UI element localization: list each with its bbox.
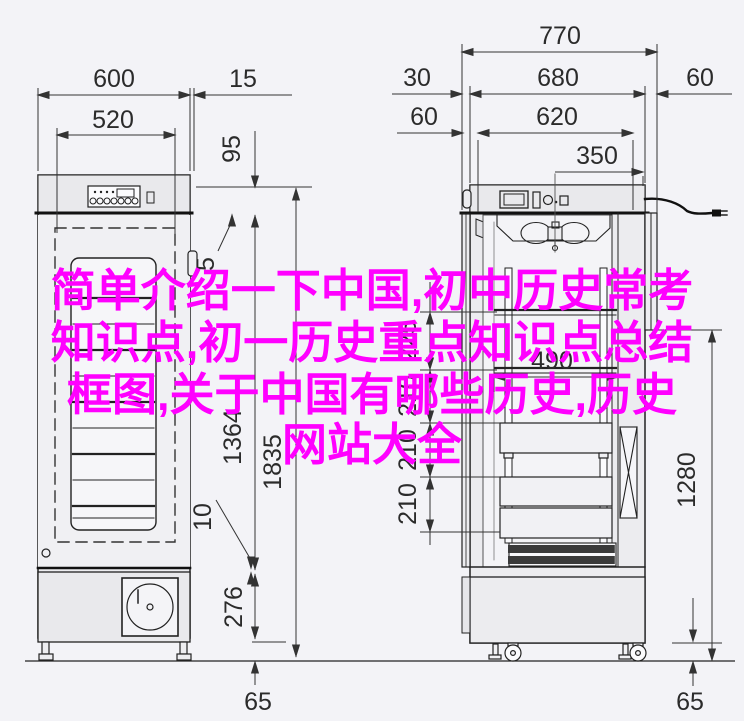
dim-side-caster-height: 65 [676, 688, 704, 716]
side-base [470, 577, 645, 643]
dim-front-side-offset: 15 [229, 65, 257, 93]
dim-side-total-depth: 770 [539, 22, 581, 50]
power-plug [712, 210, 721, 217]
side-top-panel [470, 185, 645, 213]
dim-front-base-height: 276 [220, 586, 248, 628]
seo-overlay-line-1: 简单介绍一下中国,初中历史常考 [0, 266, 744, 316]
seo-overlay-line-4: 网站大全 [0, 420, 744, 470]
dim-front-bottom-gap: 10 [189, 503, 217, 531]
side-base-front-panel [462, 577, 470, 633]
dim-front-top-height: 95 [218, 135, 246, 163]
dim-side-rear-offset: 60 [686, 64, 714, 92]
front-feet [39, 642, 191, 660]
dim-side-front-offset: 60 [410, 103, 438, 131]
side-handle-cap [463, 190, 471, 208]
dim-side-pitch-4: 210 [394, 483, 422, 525]
dim-front-total-width: 600 [93, 65, 135, 93]
dim-front-inner-width: 520 [92, 106, 134, 134]
page: 600 15 520 95 5 1364 1835 10 276 65 [0, 0, 744, 721]
dim-front-foot-height: 65 [244, 688, 272, 716]
front-fan [122, 578, 178, 636]
dim-side-door-thickness: 30 [403, 64, 431, 92]
seo-overlay-line-2: 知识点,初一历史重点知识点总结 [0, 318, 744, 368]
dim-side-cord-offset: 350 [576, 142, 618, 170]
side-casters [489, 643, 646, 661]
dim-side-body-depth: 680 [537, 64, 579, 92]
seo-overlay-line-3: 框图,关于中国有哪些历史,历史 [0, 370, 744, 420]
dim-side-inner-depth: 620 [536, 103, 578, 131]
